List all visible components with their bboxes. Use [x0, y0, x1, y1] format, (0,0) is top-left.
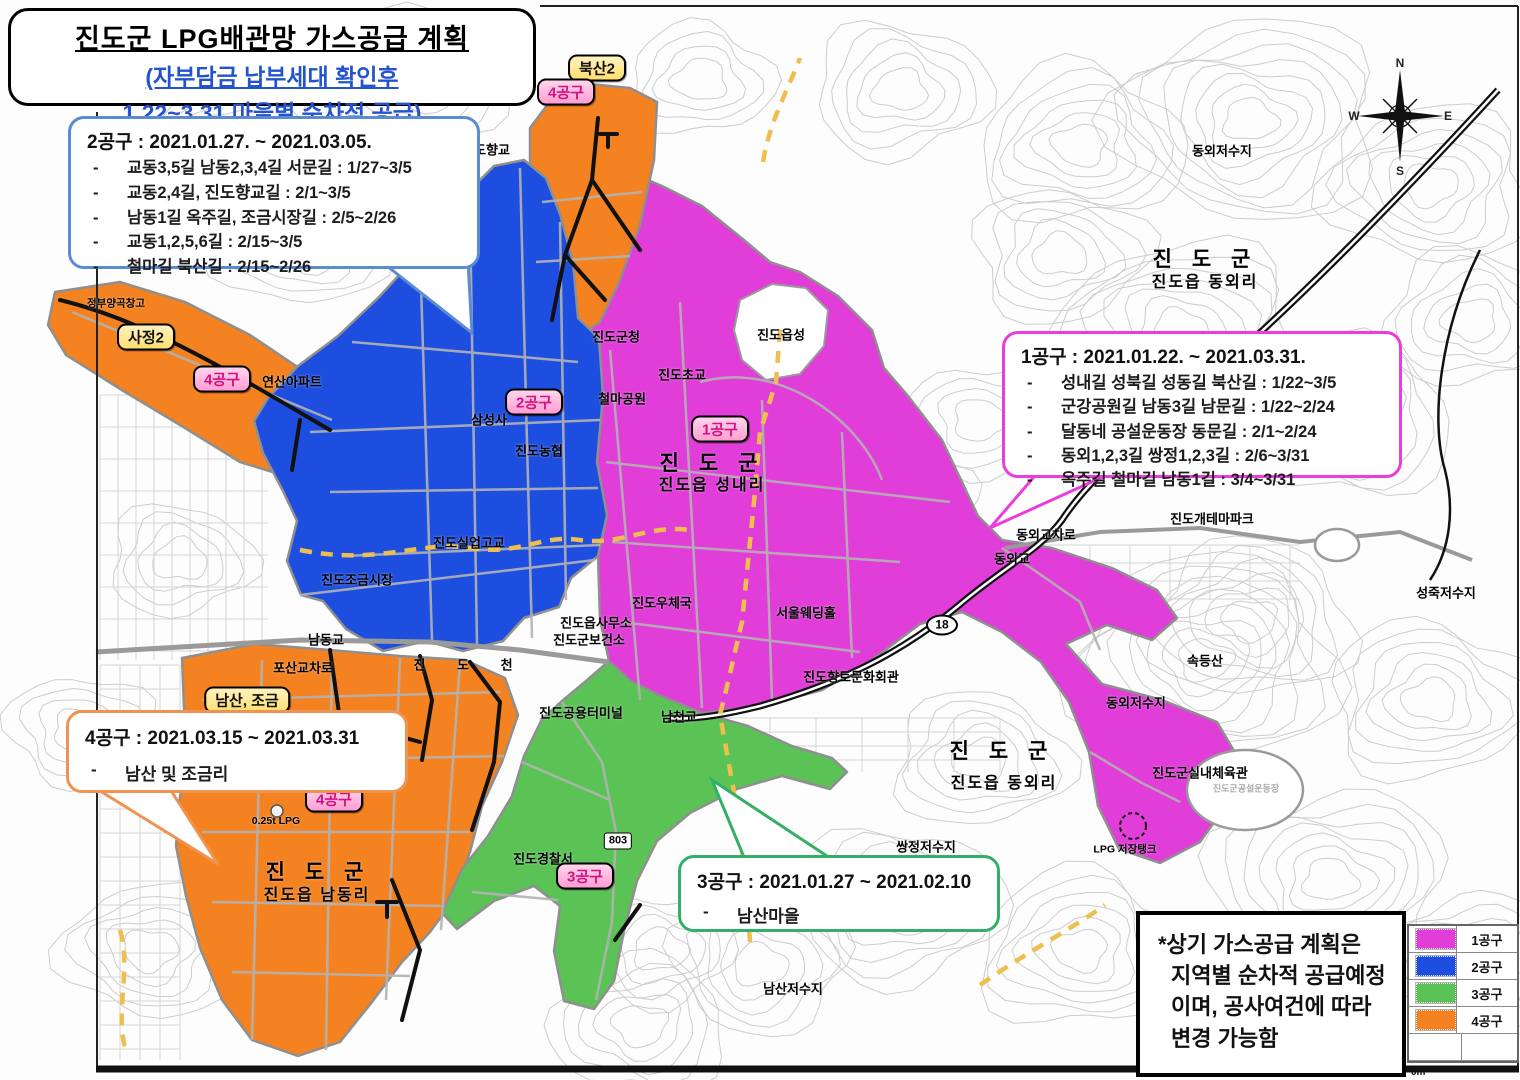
- callout-item: -달동네 공설운동장 동문길 : 2/1~2/24: [1021, 420, 1389, 444]
- bullet-dash: -: [87, 181, 127, 206]
- callout-zone4-heading: 4공구 : 2021.03.15 ~ 2021.03.31: [85, 723, 395, 750]
- note-line: *상기 가스공급 계획은: [1158, 929, 1394, 960]
- bullet-dash: -: [1021, 444, 1061, 468]
- zone-badge: 2공구: [505, 389, 563, 416]
- callout-item-text: 철마길 북산길 : 2/15~2/26: [127, 255, 311, 280]
- map-label: 진도개테마파크: [1170, 509, 1254, 528]
- map-label: 철마공원: [598, 389, 646, 408]
- legend-swatch: [1416, 1010, 1456, 1030]
- callout-item-text: 군강공원길 남동3길 남문길 : 1/22~2/24: [1061, 395, 1335, 419]
- map-label: 진도우체국: [632, 593, 692, 612]
- zone-badge: 3공구: [556, 863, 614, 890]
- map-label: 연산아파트: [262, 372, 322, 391]
- legend-row: 4공구: [1409, 1007, 1517, 1034]
- map-label: 진 도 천: [413, 655, 526, 674]
- map-label: 남동교: [308, 630, 344, 649]
- zone-badge: 1공구: [691, 416, 749, 443]
- zone-badge: 4공구: [537, 79, 595, 106]
- zone-badge: 북산2: [568, 55, 626, 82]
- legend-label: 2공구: [1456, 953, 1517, 979]
- callout-item: -군강공원길 남동3길 남문길 : 1/22~2/24: [1021, 395, 1389, 419]
- road-shield: 803: [604, 833, 632, 850]
- callout-item-text: 달동네 공설운동장 동문길 : 2/1~2/24: [1061, 420, 1317, 444]
- road-shield: 18: [926, 615, 958, 636]
- callout-item: -남동1길 옥주길, 조금시장길 : 2/5~2/26: [87, 206, 467, 231]
- callout-item: -교동3,5길 남동2,3,4길 서문길 : 1/27~3/5: [87, 156, 467, 181]
- callout-item-text: 남산마을: [737, 902, 800, 927]
- bullet-dash: -: [1021, 420, 1061, 444]
- map-label: 삼성사: [471, 410, 507, 429]
- callout-item: -성내길 성북길 성동길 북산길 : 1/22~3/5: [1021, 371, 1389, 395]
- callout-item-text: 교동2,4길, 진도향교길 : 2/1~3/5: [127, 181, 351, 206]
- map-label: 정부양곡창고: [87, 296, 145, 311]
- callout-zone1-items: -성내길 성북길 성동길 북산길 : 1/22~3/5-군강공원길 남동3길 남…: [1021, 371, 1389, 492]
- map-label: 진도읍 동외리: [951, 769, 1058, 793]
- map-label: 서울웨딩홀: [776, 603, 836, 622]
- map-label: 진 도 군: [950, 735, 1055, 765]
- map-label: 동외저수지: [1106, 693, 1166, 712]
- bullet-dash: -: [87, 255, 127, 280]
- map-label: 진도농협: [515, 441, 563, 460]
- callout-item-text: 남산 및 조금리: [125, 760, 228, 785]
- bullet-dash: -: [87, 156, 127, 181]
- callout-zone3-items: -남산마을: [697, 902, 987, 927]
- legend-rows: 1공구2공구3공구4공구: [1409, 926, 1517, 1034]
- callout-zone2-heading: 2공구 : 2021.01.27. ~ 2021.03.05.: [87, 127, 467, 154]
- note-box: *상기 가스공급 계획은 지역별 순차적 공급예정 이며, 공사여건에 따라 변…: [1136, 911, 1406, 1077]
- compass-e-label: E: [1444, 109, 1452, 123]
- map-label: 포산교차로: [273, 658, 333, 677]
- map-label: 진도군청: [592, 327, 640, 346]
- map-label: 진도읍 동외리: [1152, 268, 1259, 292]
- map-label: 0.25t LPG: [252, 815, 300, 827]
- callout-zone3: 3공구 : 2021.01.27 ~ 2021.02.10 -남산마을: [678, 855, 1000, 932]
- callout-item: -동외1,2,3길 쌍정1,2,3길 : 2/6~3/31: [1021, 444, 1389, 468]
- callout-item: -교동1,2,5,6길 : 2/15~3/5: [87, 230, 467, 255]
- map-label: 진도읍 성내리: [659, 471, 766, 495]
- note-line: 이며, 공사여건에 따라: [1158, 991, 1394, 1022]
- legend-row: 1공구: [1409, 926, 1517, 953]
- callout-zone2: 2공구 : 2021.01.27. ~ 2021.03.05. -교동3,5길 …: [68, 116, 480, 269]
- map-label: 진도군공설운동장: [1213, 782, 1279, 795]
- legend-empty-row: [1409, 1034, 1517, 1061]
- zone-badge: 4공구: [193, 366, 251, 393]
- map-label: 진도읍성: [757, 325, 805, 344]
- map-label: 진도공용터미널: [539, 703, 623, 722]
- zone-badge: 사정2: [117, 324, 175, 351]
- callout-zone4: 4공구 : 2021.03.15 ~ 2021.03.31 -남산 및 조금리: [66, 710, 408, 793]
- legend-row: 2공구: [1409, 953, 1517, 980]
- map-label: 진도초교: [658, 365, 706, 384]
- map-label: 속등산: [1187, 651, 1223, 670]
- bullet-dash: -: [1021, 468, 1061, 492]
- map-label: 남산저수지: [763, 979, 823, 998]
- callout-item-text: 성내길 성북길 성동길 북산길 : 1/22~3/5: [1061, 371, 1336, 395]
- bullet-dash: -: [87, 206, 127, 231]
- legend-row: 3공구: [1409, 980, 1517, 1007]
- callout-zone4-items: -남산 및 조금리: [85, 760, 395, 785]
- legend-label: 3공구: [1456, 980, 1517, 1006]
- page-subtitle-line1: (자부담금 납부세대 확인후: [11, 58, 533, 92]
- callout-item: -교동2,4길, 진도향교길 : 2/1~3/5: [87, 181, 467, 206]
- callout-item-text: 교동1,2,5,6길 : 2/15~3/5: [127, 230, 302, 255]
- compass-w-label: W: [1348, 109, 1359, 123]
- bullet-dash: -: [697, 902, 737, 927]
- legend-scale-label: 0m: [1409, 1061, 1517, 1078]
- map-label: 남천교: [661, 707, 697, 726]
- compass-n-label: N: [1396, 56, 1405, 70]
- callout-item: -남산마을: [697, 902, 987, 927]
- legend-label: 4공구: [1456, 1007, 1517, 1033]
- map-label: 진도군보건소: [553, 630, 625, 649]
- note-line: 지역별 순차적 공급예정: [1158, 960, 1394, 991]
- bullet-dash: -: [87, 230, 127, 255]
- bullet-dash: -: [85, 760, 125, 785]
- map-label: 동외저수지: [1192, 141, 1252, 160]
- map-label: 진도조금시장: [321, 570, 393, 589]
- map-label: 진도실업고교: [433, 533, 505, 552]
- bullet-dash: -: [1021, 371, 1061, 395]
- map-label: 동외교차로: [1016, 525, 1076, 544]
- callout-item-text: 동외1,2,3길 쌍정1,2,3길 : 2/6~3/31: [1061, 444, 1309, 468]
- map-label: LPG 저장탱크: [1093, 842, 1156, 857]
- bullet-dash: -: [1021, 395, 1061, 419]
- callout-zone1-heading: 1공구 : 2021.01.22. ~ 2021.03.31.: [1021, 342, 1389, 369]
- compass-s-label: S: [1396, 164, 1404, 178]
- callout-item: -남산 및 조금리: [85, 760, 395, 785]
- callout-zone2-items: -교동3,5길 남동2,3,4길 서문길 : 1/27~3/5-교동2,4길, …: [87, 156, 467, 280]
- callout-item-text: 옥주길 철마길 남동1길 : 3/4~3/31: [1061, 468, 1295, 492]
- callout-item: -철마길 북산길 : 2/15~2/26: [87, 255, 467, 280]
- map-page: 진도향교정부양곡창고연산아파트진도군청진도초교진도읍성철마공원삼성사진도농협진도…: [0, 0, 1520, 1080]
- map-label: 진도군실내체육관: [1152, 763, 1248, 782]
- callout-item-text: 남동1길 옥주길, 조금시장길 : 2/5~2/26: [127, 206, 396, 231]
- title-box: 진도군 LPG배관망 가스공급 계획 (자부담금 납부세대 확인후 1.22~3…: [8, 8, 536, 106]
- callout-item: -옥주길 철마길 남동1길 : 3/4~3/31: [1021, 468, 1389, 492]
- map-label: 진도향토문화회관: [803, 667, 899, 686]
- map-label: 성죽저수지: [1416, 583, 1476, 602]
- legend-swatch: [1416, 929, 1456, 949]
- page-title: 진도군 LPG배관망 가스공급 계획: [11, 17, 533, 56]
- legend-label: 1공구: [1456, 926, 1517, 952]
- callout-item-text: 교동3,5길 남동2,3,4길 서문길 : 1/27~3/5: [127, 156, 412, 181]
- legend-swatch: [1416, 956, 1456, 976]
- map-label: 동외교: [994, 549, 1030, 568]
- legend: 1공구2공구3공구4공구 0m: [1407, 924, 1519, 1063]
- map-label: 진도읍 남동리: [264, 881, 371, 905]
- callout-zone1: 1공구 : 2021.01.22. ~ 2021.03.31. -성내길 성북길…: [1002, 331, 1402, 478]
- map-label: 쌍정저수지: [896, 837, 956, 856]
- note-line: 변경 가능함: [1158, 1023, 1394, 1054]
- callout-zone3-heading: 3공구 : 2021.01.27 ~ 2021.02.10: [697, 867, 987, 894]
- legend-swatch: [1416, 983, 1456, 1003]
